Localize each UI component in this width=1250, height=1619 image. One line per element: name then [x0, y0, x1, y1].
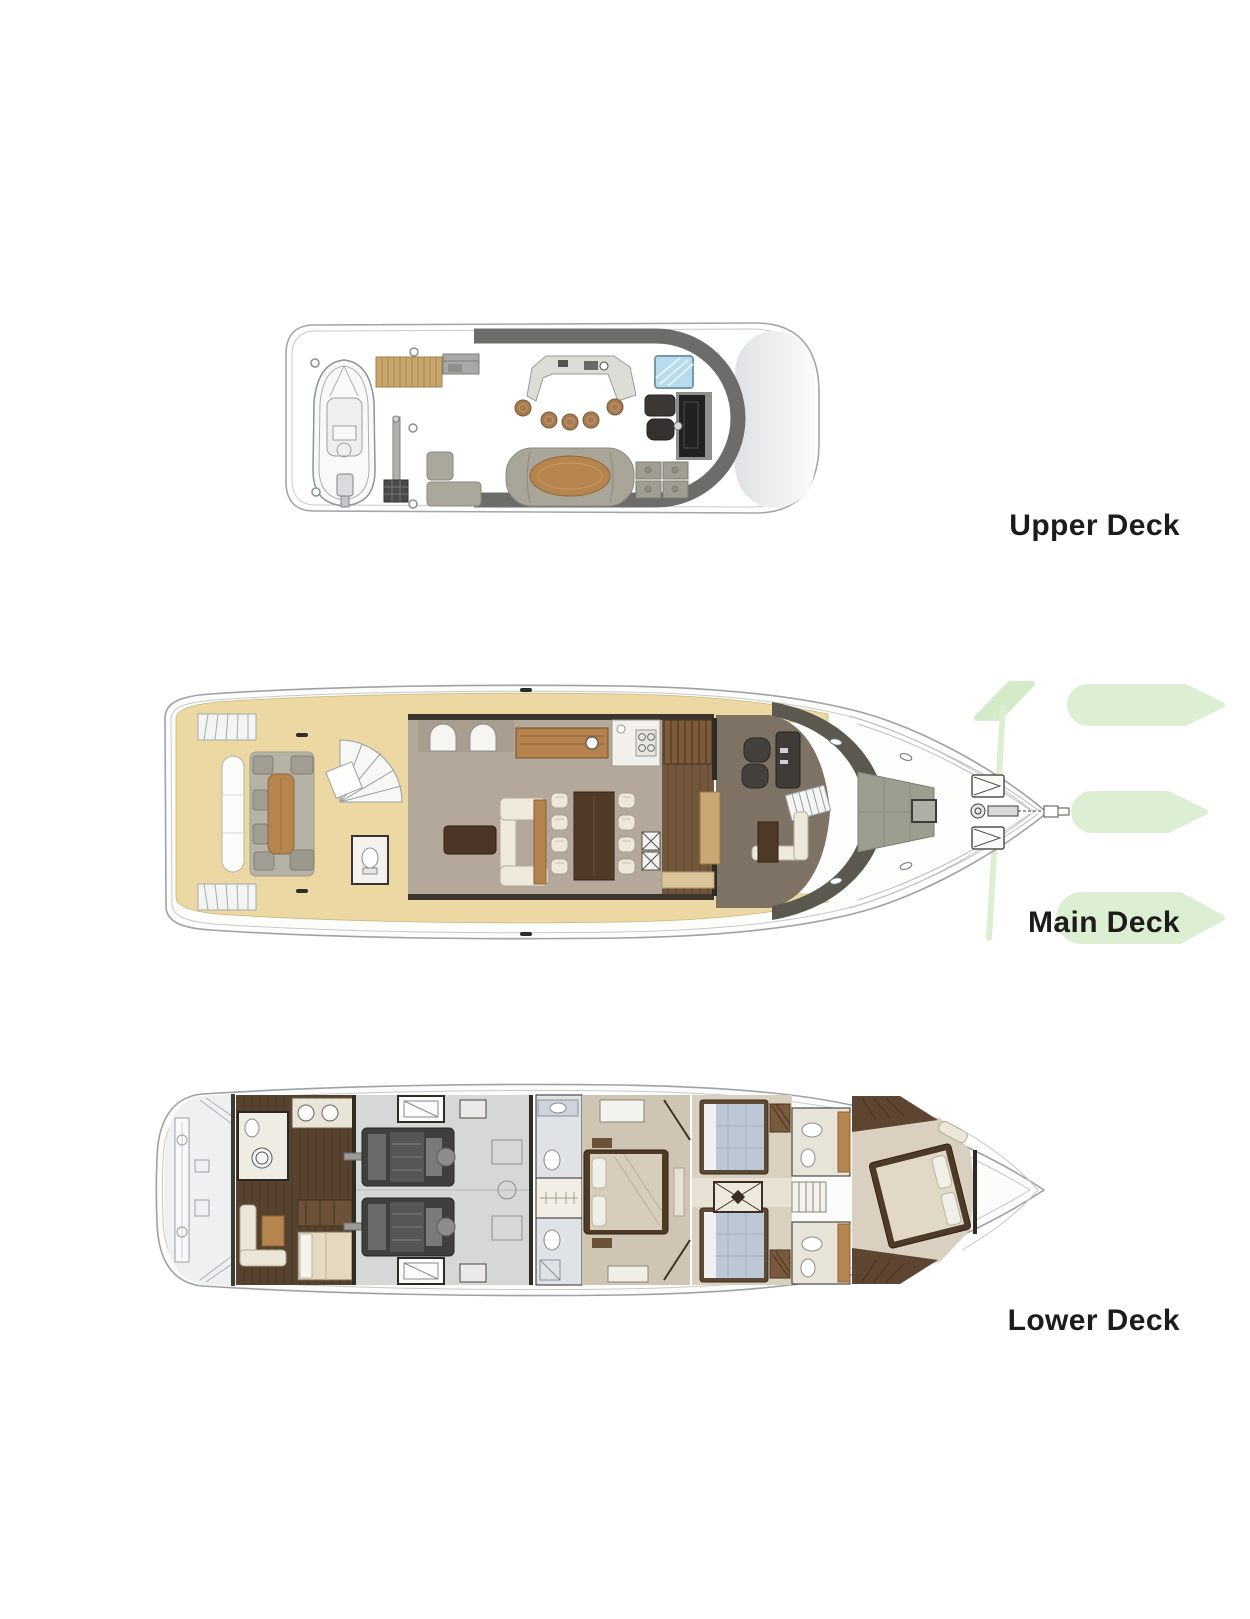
generator-box [398, 1258, 444, 1284]
tv-cabinet [674, 392, 712, 460]
nightstand [592, 1238, 612, 1248]
generator-box [398, 1096, 444, 1122]
aft-stairs-starboard [198, 884, 256, 910]
upper-deck-label: Upper Deck [1009, 509, 1180, 543]
storage-module [443, 354, 479, 374]
master-bathroom-lower [536, 1218, 582, 1285]
lower-deck-plan [135, 1070, 1085, 1312]
master-suite [536, 1095, 690, 1285]
teak-stairs [376, 357, 442, 387]
helm-table [758, 822, 778, 862]
crew-quarters [236, 1095, 354, 1285]
anchor-roller [1044, 806, 1069, 817]
oval-table-lounge [506, 448, 634, 506]
galley-island [700, 792, 720, 864]
crane-davit [393, 416, 400, 481]
corridor-rug [714, 1182, 762, 1212]
watermark-pill-middle [1074, 794, 1205, 830]
aft-stairs-port [198, 714, 256, 740]
brow-gradient [735, 331, 815, 508]
coffee-table [444, 826, 496, 854]
main-deck-label: Main Deck [1028, 906, 1180, 940]
sofa-console [534, 800, 546, 884]
bench-seat [662, 872, 714, 888]
foot-bench [674, 1168, 684, 1216]
sideboard [516, 728, 608, 758]
guest-bed-starboard [700, 1208, 768, 1282]
equipment-box [460, 1264, 486, 1282]
stairs-to-main-deck [792, 1182, 826, 1212]
tender-with-outboard [313, 360, 375, 507]
dresser [608, 1266, 648, 1282]
crew-cabin [298, 1200, 352, 1280]
master-tv-cabinet [600, 1100, 644, 1122]
helm-seat [744, 738, 770, 762]
upper-deck-plan [270, 315, 845, 525]
galley [612, 720, 660, 766]
guest-bed-port [700, 1100, 768, 1174]
helm-seat [742, 764, 768, 788]
watermark-pill-top [1070, 687, 1222, 723]
equipment-box [460, 1100, 486, 1118]
lower-deck-label: Lower Deck [1008, 1304, 1180, 1338]
crew-counter [292, 1098, 354, 1128]
aft-deck-lounge [250, 752, 314, 876]
yacht-deck-plans-canvas: Upper Deck Main Deck Lower Deck [0, 0, 1250, 1619]
engine-room [344, 1095, 533, 1285]
day-head [352, 836, 388, 884]
transom-bench [222, 756, 244, 872]
nightstand [592, 1138, 612, 1148]
crew-bathroom [238, 1112, 288, 1180]
swim-platform [164, 1094, 235, 1286]
guest-cabins [692, 1095, 792, 1285]
grill-unit [384, 480, 408, 502]
skylight [655, 356, 693, 388]
dining-table [574, 792, 614, 880]
main-deck-plan [140, 668, 1090, 950]
stairs-to-flybridge [664, 720, 712, 764]
master-bed [584, 1150, 668, 1234]
